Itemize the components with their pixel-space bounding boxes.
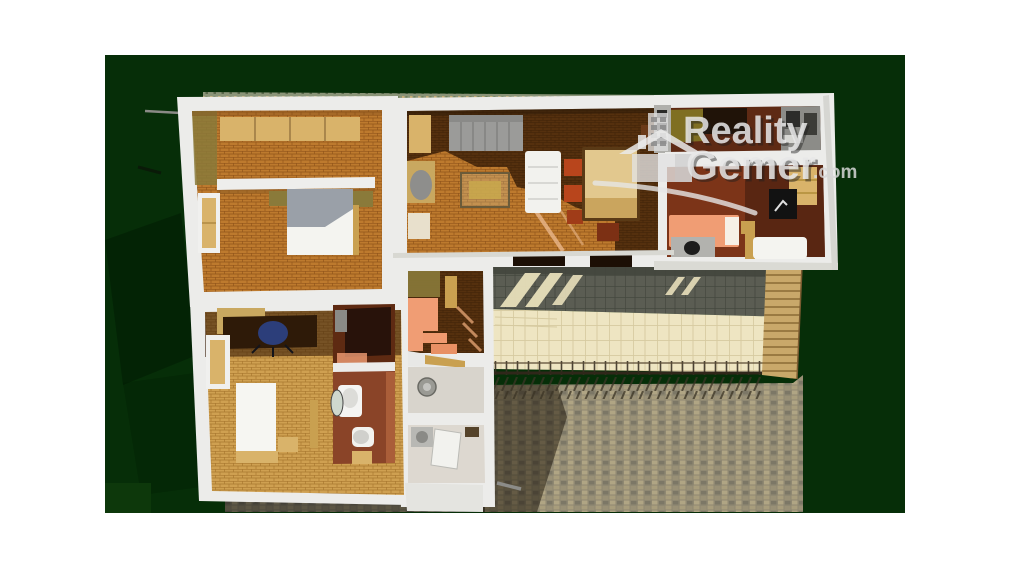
bed-single	[236, 383, 276, 453]
dining-table-lower	[585, 198, 637, 218]
floor-fan-hub	[423, 383, 431, 391]
grass-patch	[105, 483, 151, 513]
office-chair	[258, 321, 288, 345]
tv-unit	[769, 189, 797, 219]
nightstand	[269, 191, 287, 206]
room-storage	[333, 304, 395, 374]
open-door	[431, 429, 461, 469]
shelf-plank	[310, 400, 318, 448]
dining-chair	[597, 223, 619, 241]
bathroom-floor	[333, 371, 395, 464]
stair-step	[423, 333, 447, 343]
bed-white	[753, 237, 807, 259]
coffee-table-top	[469, 181, 501, 199]
chair-orange	[564, 159, 582, 176]
nightstand	[741, 221, 755, 234]
stair-step	[431, 344, 457, 354]
hall-door	[445, 276, 457, 308]
bed-foot	[236, 451, 278, 463]
laundry-item	[465, 427, 479, 437]
room-utility	[408, 367, 484, 425]
storage-table	[345, 307, 391, 357]
driveway	[489, 265, 795, 317]
watermark-suffix: .com	[813, 162, 857, 183]
dining-table-top	[585, 150, 637, 198]
chair-orange	[567, 210, 583, 224]
side-steps-rungs	[762, 266, 802, 379]
bed-pillow	[725, 217, 739, 245]
watermark-line2: Gemer	[686, 142, 816, 188]
wall-stoop	[405, 483, 483, 512]
dresser	[408, 213, 430, 239]
storage-light-patch	[337, 353, 367, 363]
chair-orange	[564, 185, 582, 202]
armchair	[410, 170, 432, 200]
room-bathroom	[331, 371, 395, 464]
bed-frame-edge	[353, 205, 359, 255]
floorplan-svg: Reality Reality Gemer Gemer .com	[105, 55, 905, 513]
toilet-seat	[353, 430, 369, 444]
storage-item	[335, 310, 347, 332]
sink-basin	[342, 388, 358, 408]
rendered-image: Reality Reality Gemer Gemer .com	[0, 0, 1011, 570]
bathroom-wall-tiles	[386, 372, 395, 463]
wall-unit-top	[449, 115, 523, 122]
nightstand	[353, 191, 373, 207]
bedroom1-olive-strip	[192, 111, 217, 185]
mirror	[331, 390, 343, 416]
wall-divider	[408, 413, 484, 425]
side-cabinet	[409, 115, 431, 153]
room-bedroom-top-left	[192, 110, 382, 292]
storage-box	[278, 437, 298, 452]
floorplan-matte: Reality Reality Gemer Gemer .com	[105, 55, 905, 513]
room-laundry	[408, 425, 485, 483]
washer-door	[416, 431, 428, 443]
bath-cabinet	[352, 451, 372, 464]
bedroom1-top-shade	[192, 110, 382, 116]
desk-chair	[684, 241, 700, 255]
railing-shadow-hatch	[493, 377, 761, 399]
window-inner	[210, 340, 225, 384]
doorway-opening	[590, 255, 632, 267]
partition-beam	[217, 177, 375, 190]
hall-olive-patch	[408, 271, 440, 297]
